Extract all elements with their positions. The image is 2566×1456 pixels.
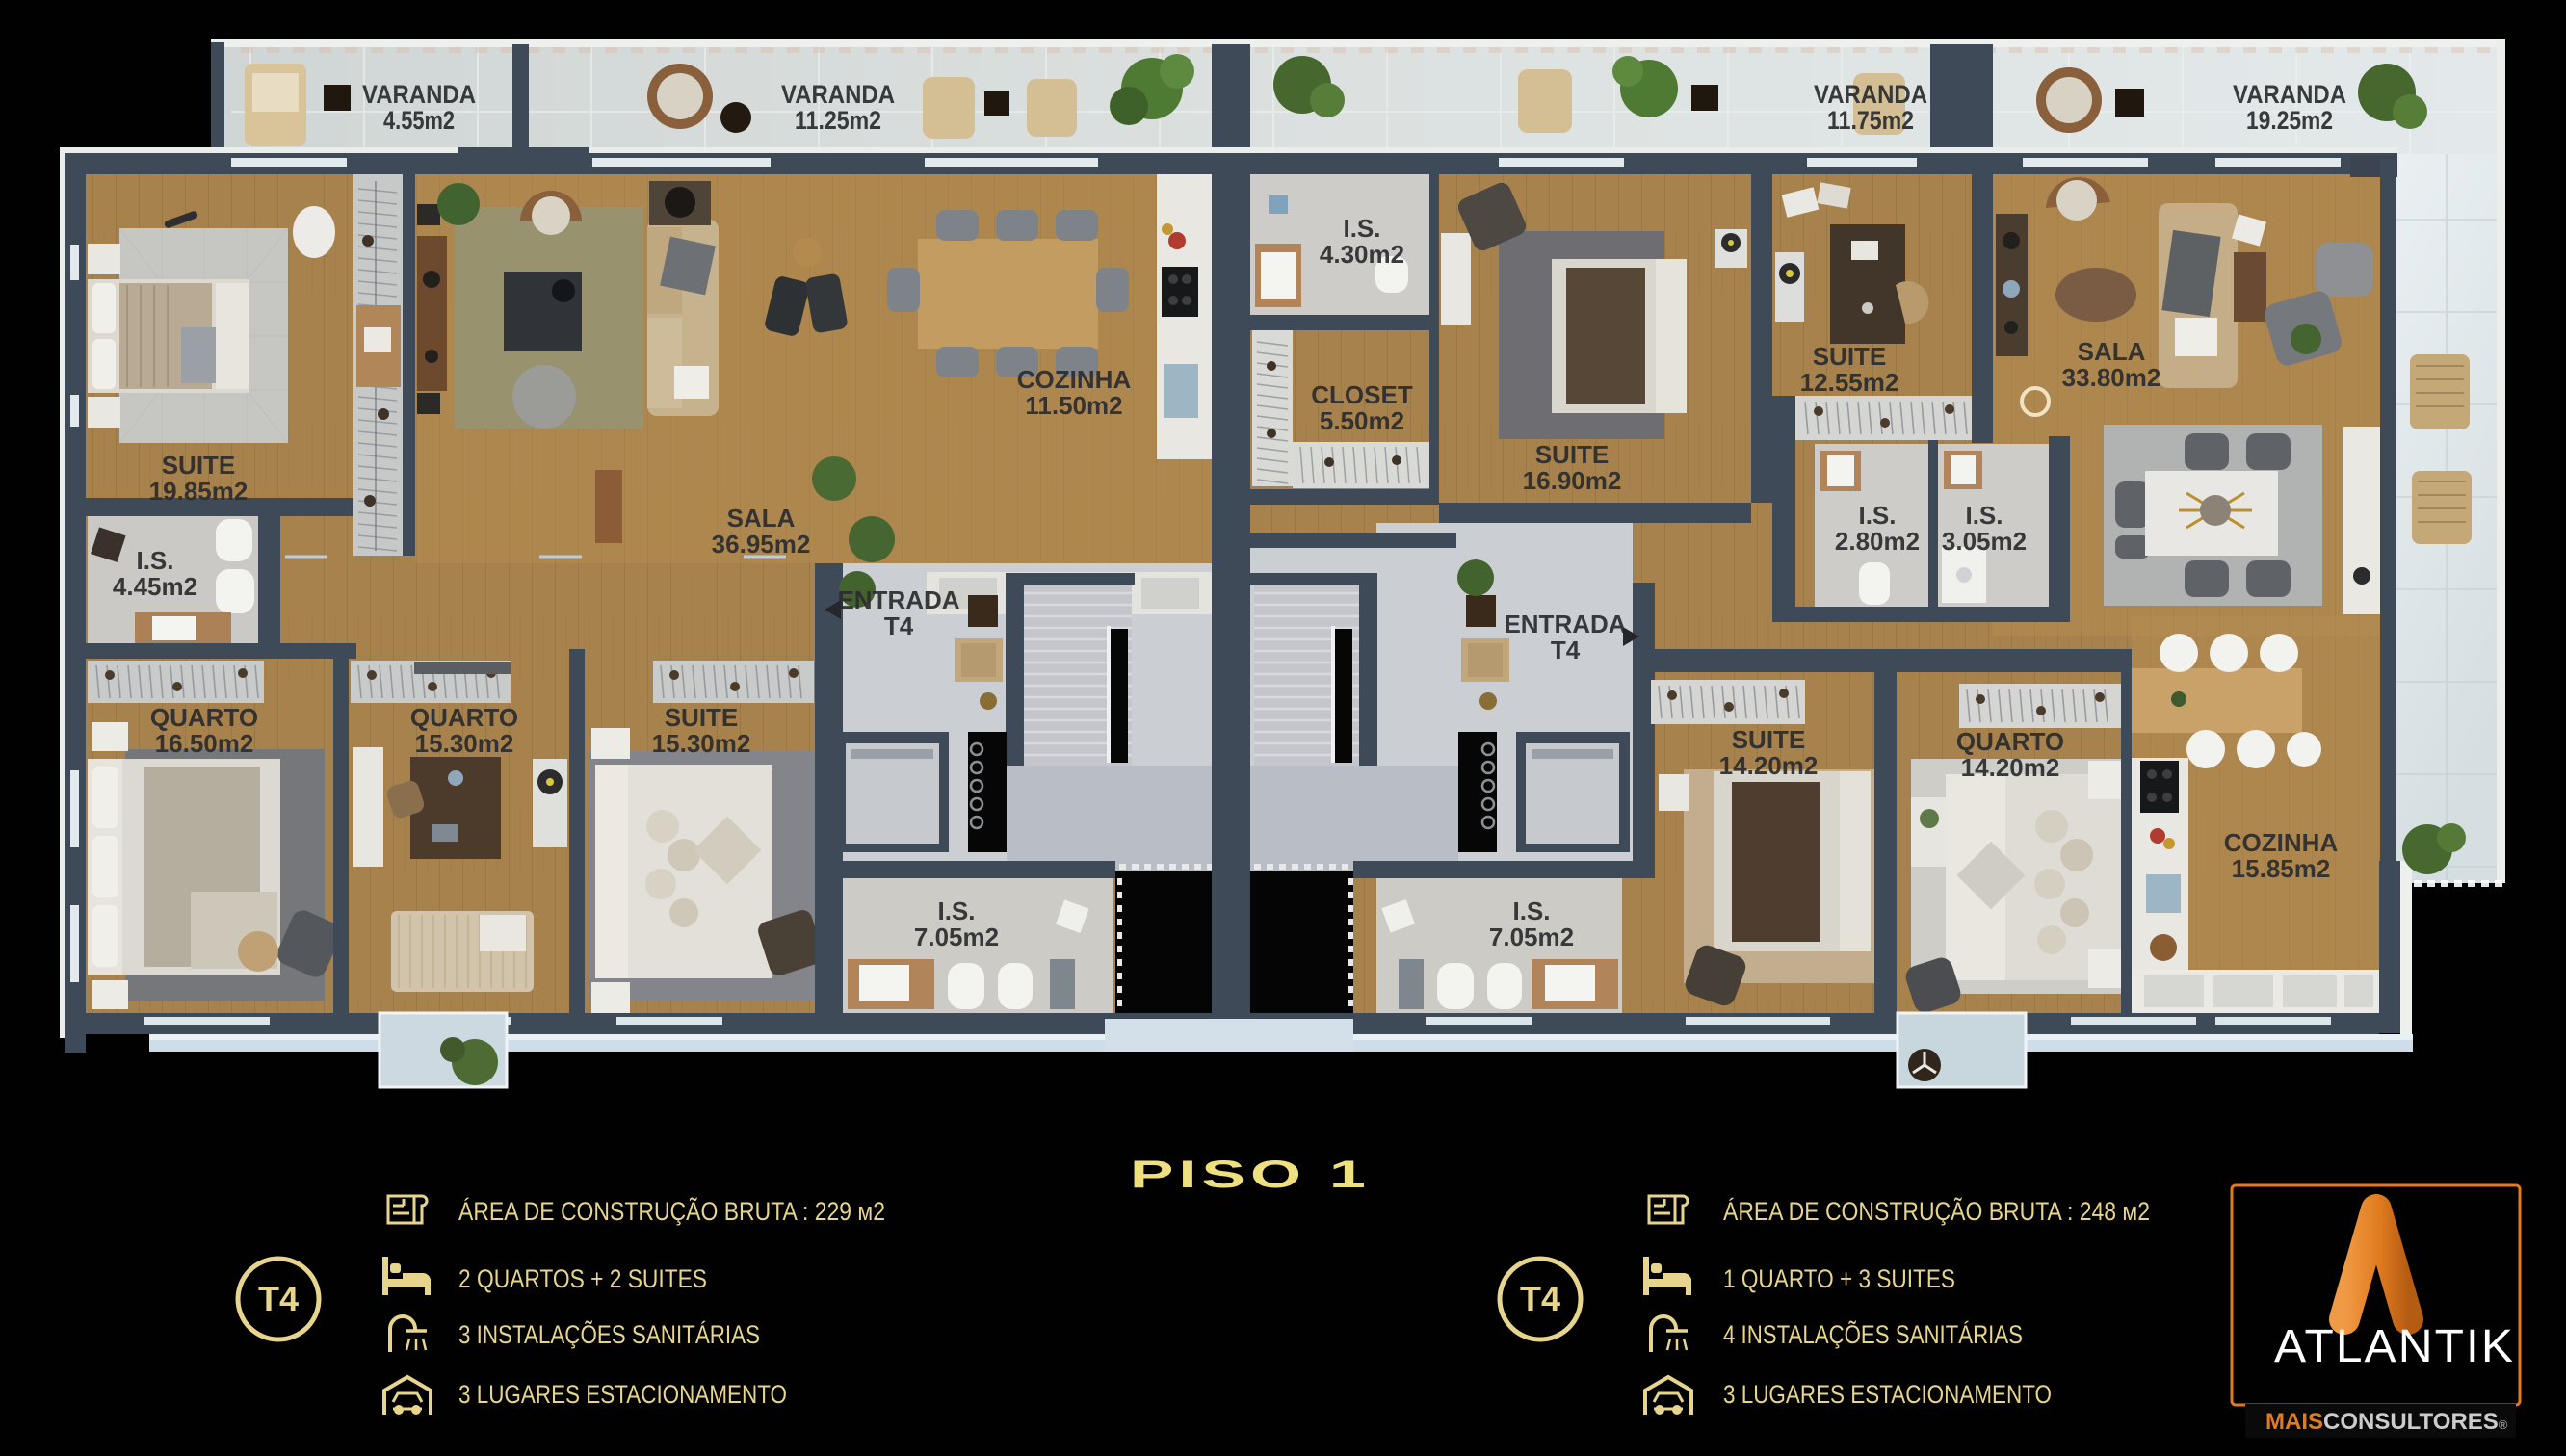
- svg-text:16.90m2: 16.90m2: [1523, 466, 1622, 495]
- svg-text:1 QUARTO + 3 SUITES: 1 QUARTO + 3 SUITES: [1723, 1264, 1955, 1293]
- svg-text:T4: T4: [258, 1279, 299, 1318]
- svg-text:CLOSET: CLOSET: [1311, 380, 1413, 409]
- svg-text:SUITE: SUITE: [1732, 725, 1806, 754]
- svg-text:14.20m2: 14.20m2: [1961, 753, 2060, 782]
- svg-text:VARANDA: VARANDA: [1814, 80, 1927, 109]
- svg-text:SUITE: SUITE: [665, 703, 739, 732]
- svg-text:I.S.: I.S.: [1965, 501, 2003, 530]
- svg-text:15.85m2: 15.85m2: [2232, 854, 2331, 883]
- svg-text:36.95m2: 36.95m2: [712, 530, 811, 559]
- svg-text:VARANDA: VARANDA: [2233, 80, 2346, 109]
- svg-text:ÁREA DE CONSTRUÇÃO BRUTA : 24: ÁREA DE CONSTRUÇÃO BRUTA : 248 м2: [1723, 1196, 2150, 1226]
- svg-text:16.50m2: 16.50m2: [155, 729, 254, 758]
- svg-text:15.30m2: 15.30m2: [415, 729, 514, 758]
- svg-text:33.80m2: 33.80m2: [2062, 363, 2161, 392]
- svg-text:T4: T4: [1551, 636, 1581, 664]
- svg-text:3.05m2: 3.05m2: [1942, 527, 2027, 556]
- svg-text:ENTRADA: ENTRADA: [837, 585, 959, 614]
- svg-text:SALA: SALA: [727, 504, 796, 533]
- svg-text:QUARTO: QUARTO: [410, 703, 518, 732]
- svg-text:15.30m2: 15.30m2: [652, 729, 751, 758]
- svg-text:I.S.: I.S.: [937, 897, 975, 925]
- svg-text:11.25m2: 11.25m2: [795, 106, 881, 135]
- svg-text:4.55m2: 4.55m2: [383, 106, 455, 135]
- svg-text:7.05m2: 7.05m2: [1489, 923, 1574, 951]
- svg-text:I.S.: I.S.: [1858, 501, 1896, 530]
- svg-text:3 LUGARES ESTACIONAMENTO: 3 LUGARES ESTACIONAMENTO: [458, 1380, 787, 1409]
- svg-text:3 INSTALAÇÕES SANITÁRIAS: 3 INSTALAÇÕES SANITÁRIAS: [458, 1319, 760, 1349]
- svg-text:19.85m2: 19.85m2: [149, 477, 249, 506]
- svg-text:I.S.: I.S.: [1512, 897, 1550, 925]
- svg-text:VARANDA: VARANDA: [362, 80, 476, 109]
- svg-text:SUITE: SUITE: [162, 451, 236, 480]
- svg-text:14.20m2: 14.20m2: [1719, 751, 1819, 780]
- svg-text:SALA: SALA: [2078, 337, 2146, 366]
- svg-text:T4: T4: [1520, 1279, 1560, 1318]
- svg-text:4.30m2: 4.30m2: [1320, 240, 1404, 269]
- svg-text:12.55m2: 12.55m2: [1800, 368, 1899, 397]
- svg-text:COZINHA: COZINHA: [1017, 365, 1132, 394]
- svg-text:SUITE: SUITE: [1535, 440, 1610, 469]
- svg-text:MAISCONSULTORES®: MAISCONSULTORES®: [2265, 1409, 2508, 1435]
- svg-text:VARANDA: VARANDA: [781, 80, 895, 109]
- svg-text:7.05m2: 7.05m2: [914, 923, 999, 951]
- svg-text:5.50m2: 5.50m2: [1320, 406, 1404, 435]
- svg-text:COZINHA: COZINHA: [2224, 828, 2339, 857]
- svg-text:I.S.: I.S.: [1343, 214, 1380, 243]
- svg-text:11.50m2: 11.50m2: [1025, 391, 1122, 420]
- svg-text:4 INSTALAÇÕES SANITÁRIAS: 4 INSTALAÇÕES SANITÁRIAS: [1723, 1319, 2023, 1349]
- svg-text:QUARTO: QUARTO: [1956, 727, 2064, 756]
- svg-text:3 LUGARES ESTACIONAMENTO: 3 LUGARES ESTACIONAMENTO: [1723, 1380, 2052, 1409]
- svg-text:4.45m2: 4.45m2: [113, 572, 197, 601]
- svg-text:T4: T4: [884, 611, 914, 640]
- svg-text:QUARTO: QUARTO: [150, 703, 258, 732]
- svg-text:ENTRADA: ENTRADA: [1504, 610, 1626, 638]
- svg-text:SUITE: SUITE: [1813, 342, 1887, 371]
- svg-text:ATLANTIK: ATLANTIK: [2274, 1321, 2515, 1372]
- svg-text:19.25m2: 19.25m2: [2246, 106, 2333, 135]
- svg-text:I.S.: I.S.: [136, 546, 173, 575]
- svg-text:2 QUARTOS + 2 SUITES: 2 QUARTOS + 2 SUITES: [458, 1264, 707, 1293]
- svg-text:2.80m2: 2.80m2: [1835, 527, 1920, 556]
- svg-text:11.75m2: 11.75m2: [1827, 106, 1914, 135]
- svg-text:PISO 1: PISO 1: [1130, 1154, 1371, 1196]
- svg-text:ÁREA DE CONSTRUÇÃO BRUTA : 22: ÁREA DE CONSTRUÇÃO BRUTA : 229 м2: [458, 1196, 885, 1226]
